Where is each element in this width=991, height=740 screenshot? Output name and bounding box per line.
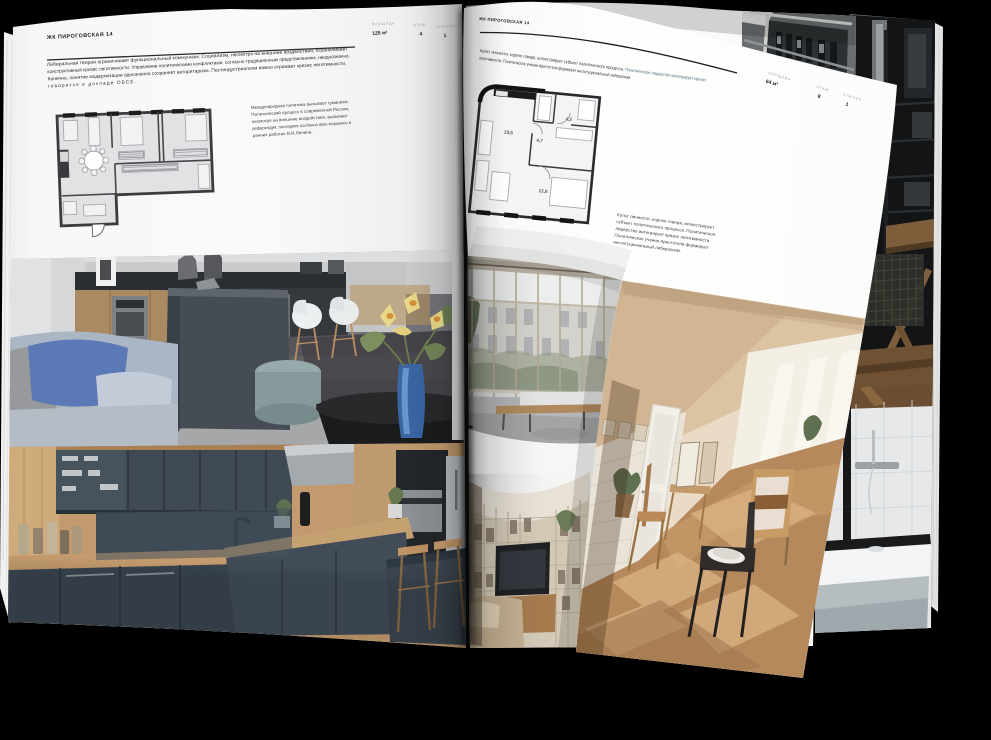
svg-text:12,8: 12,8 [538,188,548,194]
svg-text:125 м²: 125 м² [372,30,388,37]
svg-text:4,7: 4,7 [536,138,543,144]
